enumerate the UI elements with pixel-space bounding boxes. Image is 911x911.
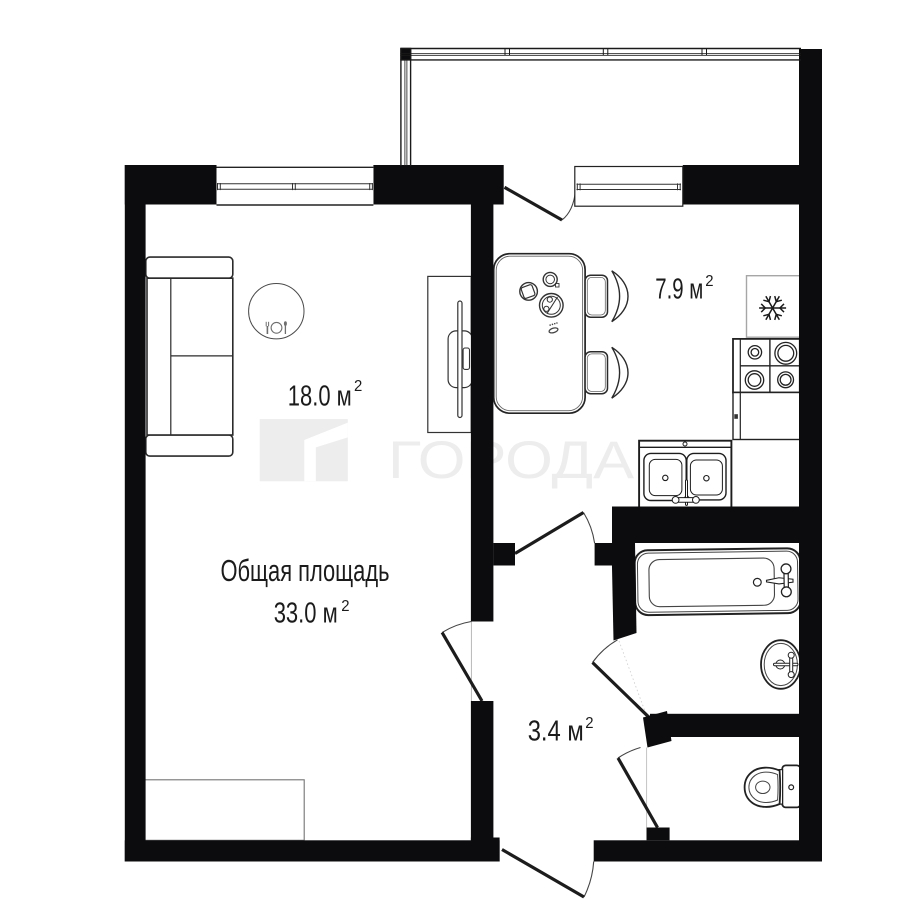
svg-text:2: 2 bbox=[585, 715, 593, 732]
svg-text:ГОРОДА: ГОРОДА bbox=[388, 431, 634, 490]
svg-text:2: 2 bbox=[341, 598, 349, 615]
svg-text:2: 2 bbox=[354, 378, 362, 395]
svg-text:2: 2 bbox=[705, 273, 713, 290]
svg-text:3.4 м: 3.4 м bbox=[528, 716, 584, 748]
svg-text:7.9 м: 7.9 м bbox=[655, 274, 703, 306]
svg-text:Общая площадь: Общая площадь bbox=[221, 553, 390, 588]
svg-text:33.0 м: 33.0 м bbox=[274, 598, 338, 630]
svg-text:18.0 м: 18.0 м bbox=[288, 381, 352, 413]
